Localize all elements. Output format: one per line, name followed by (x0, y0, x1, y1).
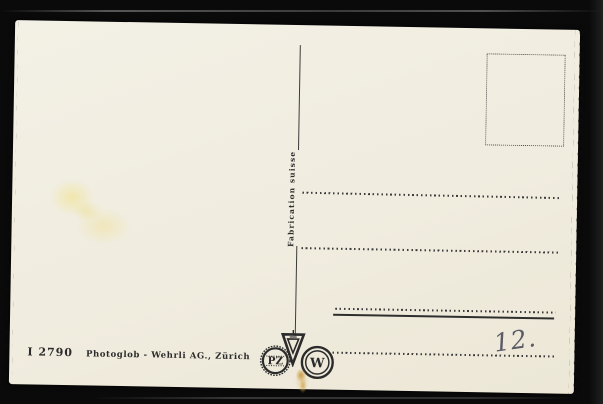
postcard-card: Fabrication suisse 12. I 2790 Photoglob … (9, 20, 580, 394)
scanned-postcard-back: Fabrication suisse 12. I 2790 Photoglob … (0, 0, 603, 404)
address-underline (333, 314, 554, 320)
scan-artifact-bottom-streak (90, 397, 570, 399)
w-logo-text: W (309, 356, 325, 371)
stamp-box (485, 53, 566, 146)
card-number: I 2790 (27, 345, 73, 359)
divider-line-upper (298, 45, 301, 150)
publisher-name: Photoglob - Wehrli AG., Zürich (86, 349, 250, 362)
address-line-2 (301, 247, 559, 254)
fabrication-label: Fabrication suisse (286, 155, 300, 247)
scan-artifact-top-streak (0, 10, 603, 12)
w-stamp-icon: W (300, 345, 335, 384)
address-line-1 (302, 192, 560, 199)
scan-artifact-right-band (589, 0, 603, 404)
deckled-edge-left (5, 18, 18, 386)
handwritten-number: 12. (492, 323, 538, 358)
publisher-imprint: I 2790 Photoglob - Wehrli AG., Zürich (27, 345, 250, 362)
divider-line-lower (295, 246, 298, 336)
stain-left-patch (41, 171, 143, 261)
address-line-3 (335, 308, 555, 314)
deckled-edge-right (569, 28, 584, 396)
